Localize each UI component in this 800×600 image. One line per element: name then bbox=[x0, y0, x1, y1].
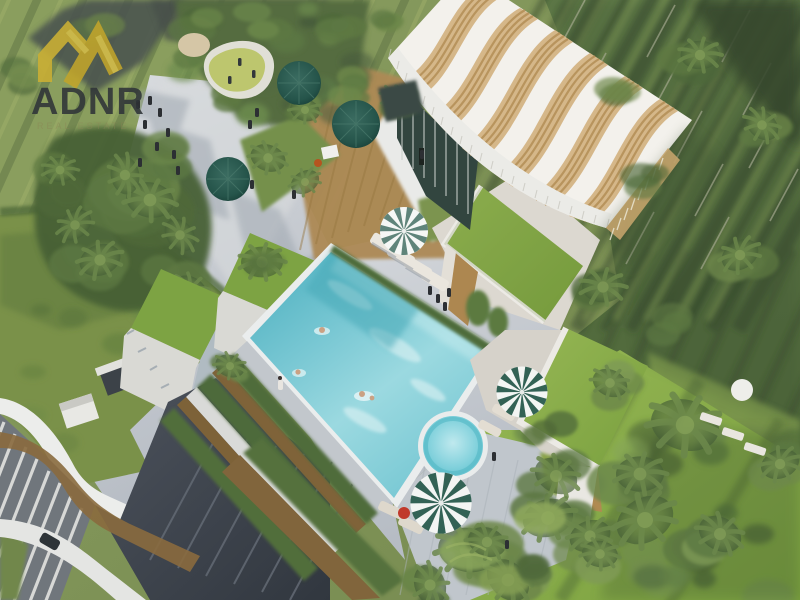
svg-text:ADNR: ADNR bbox=[31, 81, 145, 123]
svg-text:REAL ESTATE: REAL ESTATE bbox=[37, 121, 129, 131]
